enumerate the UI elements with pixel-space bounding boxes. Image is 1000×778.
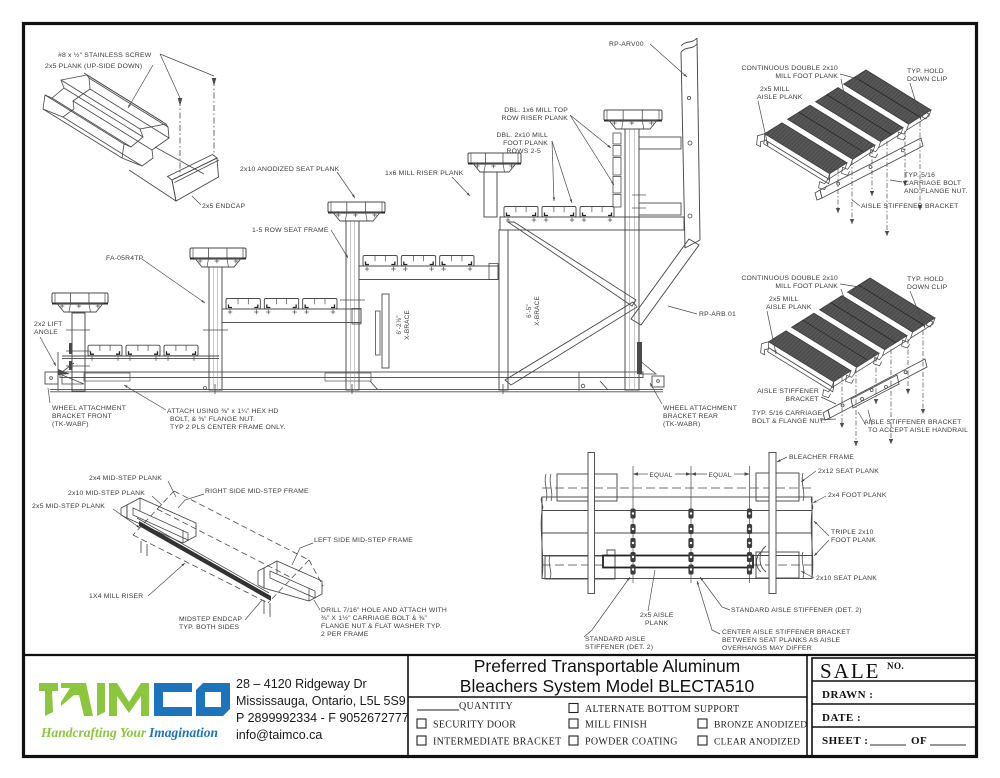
svg-text:TO ACCEPT AISLE HANDRAIL: TO ACCEPT AISLE HANDRAIL — [868, 427, 968, 434]
svg-text:AND FLANGE NUT.: AND FLANGE NUT. — [904, 188, 967, 195]
svg-text:AISLE STIFFENER BRACKET: AISLE STIFFENER BRACKET — [864, 419, 962, 426]
svg-text:DOWN CLIP: DOWN CLIP — [907, 284, 948, 291]
svg-text:2x2 LIFT: 2x2 LIFT — [34, 321, 62, 328]
svg-text:2x4 MID-STEP PLANK: 2x4 MID-STEP PLANK — [89, 475, 162, 482]
svg-text:2x4 FOOT PLANK: 2x4 FOOT PLANK — [828, 492, 887, 499]
svg-text:1-5 ROW SEAT FRAME: 1-5 ROW SEAT FRAME — [252, 227, 329, 234]
svg-text:STANDARD AISLE: STANDARD AISLE — [585, 636, 646, 643]
svg-text:QUANTITY: QUANTITY — [459, 701, 513, 712]
svg-text:MILL FOOT PLANK: MILL FOOT PLANK — [775, 283, 838, 290]
svg-text:MILL FOOT PLANK: MILL FOOT PLANK — [775, 73, 838, 80]
svg-text:TYP. HOLD: TYP. HOLD — [907, 68, 944, 75]
svg-text:TYP. 5/16 CARRIAGE: TYP. 5/16 CARRIAGE — [752, 410, 823, 417]
svg-text:X-BRACE: X-BRACE — [534, 296, 541, 326]
svg-text:BLEACHER FRAME: BLEACHER FRAME — [789, 454, 854, 461]
svg-text:BOLT, & ⅜” FLANGE NUT.: BOLT, & ⅜” FLANGE NUT. — [170, 416, 255, 423]
svg-text:DRAWN :: DRAWN : — [822, 689, 873, 701]
svg-text:FLANGE NUT & FLAT WASHER TYP.: FLANGE NUT & FLAT WASHER TYP. — [321, 623, 442, 630]
svg-text:2x10 SEAT PLANK: 2x10 SEAT PLANK — [816, 575, 877, 582]
svg-text:SECURITY DOOR: SECURITY DOOR — [433, 720, 516, 731]
svg-text:2x5 PLANK (UP-SIDE DOWN): 2x5 PLANK (UP-SIDE DOWN) — [45, 63, 142, 70]
svg-text:AISLE STIFFENER: AISLE STIFFENER — [757, 388, 819, 395]
svg-text:⅜” X 1½” CARRIAGE BOLT & ⅜”: ⅜” X 1½” CARRIAGE BOLT & ⅜” — [321, 614, 428, 622]
svg-text:SHEET :: SHEET : — [822, 735, 868, 747]
svg-text:2 PER FRAME: 2 PER FRAME — [321, 631, 369, 638]
svg-text:RIGHT SIDE MID-STEP FRAME: RIGHT SIDE MID-STEP FRAME — [205, 488, 309, 495]
svg-text:2x5 MID-STEP PLANK: 2x5 MID-STEP PLANK — [32, 503, 105, 510]
svg-text:AISLE PLANK: AISLE PLANK — [757, 94, 803, 101]
svg-text:OF: OF — [911, 735, 927, 747]
svg-text:#8 x ½" STAINLESS SCREW: #8 x ½" STAINLESS SCREW — [58, 51, 152, 59]
svg-text:Bleachers System Model BLECTA5: Bleachers System Model BLECTA510 — [460, 676, 755, 696]
svg-text:MILL FINISH: MILL FINISH — [585, 720, 647, 731]
svg-text:INTERMEDIATE BRACKET: INTERMEDIATE BRACKET — [433, 737, 562, 748]
svg-text:6’-5”: 6’-5” — [526, 304, 533, 318]
svg-text:2x12 SEAT PLANK: 2x12 SEAT PLANK — [818, 468, 879, 475]
svg-text:PLANK: PLANK — [645, 620, 669, 627]
svg-text:2x5 AISLE: 2x5 AISLE — [640, 612, 674, 619]
svg-text:BETWEEN SEAT PLANKS AS AISLE: BETWEEN SEAT PLANKS AS AISLE — [722, 637, 841, 644]
svg-text:2x5 MILL: 2x5 MILL — [769, 296, 799, 303]
svg-text:DATE :: DATE : — [822, 712, 861, 724]
svg-text:WHEEL ATTACHMENT: WHEEL ATTACHMENT — [663, 405, 737, 412]
svg-text:TYP. 5/16: TYP. 5/16 — [904, 172, 935, 179]
svg-text:TYP. BOTH SIDES: TYP. BOTH SIDES — [179, 624, 240, 631]
svg-text:STANDARD AISLE STIFFENER (DET.: STANDARD AISLE STIFFENER (DET. 2) — [731, 607, 862, 614]
svg-text:1x6 MILL RISER PLANK: 1x6 MILL RISER PLANK — [385, 170, 464, 177]
svg-text:FA-05R4TP: FA-05R4TP — [106, 255, 144, 262]
svg-text:CARRIAGE BOLT: CARRIAGE BOLT — [904, 180, 961, 187]
svg-text:LEFT SIDE MID-STEP FRAME: LEFT SIDE MID-STEP FRAME — [314, 537, 413, 544]
svg-text:FOOT PLANK: FOOT PLANK — [831, 537, 876, 544]
svg-text:info@taimco.ca: info@taimco.ca — [236, 728, 322, 742]
svg-text:ALTERNATE BOTTOM SUPPORT: ALTERNATE BOTTOM SUPPORT — [585, 704, 739, 715]
svg-text:6’-2⅞”: 6’-2⅞” — [396, 315, 403, 334]
svg-text:BRACKET REAR: BRACKET REAR — [663, 413, 718, 420]
svg-text:2x5 MILL: 2x5 MILL — [760, 86, 790, 93]
svg-text:ROW RISER PLANK: ROW RISER PLANK — [502, 115, 569, 122]
svg-text:2x10 ANODIZED SEAT PLANK: 2x10 ANODIZED SEAT PLANK — [240, 166, 340, 173]
svg-text:28 – 4120 Ridgeway Dr: 28 – 4120 Ridgeway Dr — [236, 677, 367, 691]
svg-text:Imagination: Imagination — [148, 725, 218, 740]
svg-text:AISLE STIFFENER BRACKET: AISLE STIFFENER BRACKET — [861, 203, 959, 210]
svg-text:OVERHANGS MAY DIFFER: OVERHANGS MAY DIFFER — [722, 645, 812, 652]
svg-text:POWDER COATING: POWDER COATING — [585, 737, 678, 748]
svg-text:AISLE PLANK: AISLE PLANK — [766, 304, 812, 311]
svg-text:ROWS 2-5: ROWS 2-5 — [507, 148, 541, 155]
svg-text:ATTACH USING ⅜” x 1¼” HEX HD: ATTACH USING ⅜” x 1¼” HEX HD — [167, 408, 278, 415]
svg-text:MIDSTEP ENDCAP: MIDSTEP ENDCAP — [179, 616, 242, 623]
svg-text:CONTINUOUS DOUBLE 2x10: CONTINUOUS DOUBLE 2x10 — [741, 275, 838, 282]
svg-text:CLEAR ANODIZED: CLEAR ANODIZED — [714, 738, 800, 748]
svg-text:(TK-WABF): (TK-WABF) — [52, 421, 89, 428]
svg-text:Preferred Transportable Alumin: Preferred Transportable Aluminum — [474, 656, 741, 676]
svg-text:WHEEL ATTACHMENT: WHEEL ATTACHMENT — [52, 405, 126, 412]
svg-text:BOLT & FLANGE NUT.: BOLT & FLANGE NUT. — [752, 418, 825, 425]
svg-text:BRACKET: BRACKET — [785, 396, 819, 403]
svg-text:CONTINUOUS DOUBLE 2x10: CONTINUOUS DOUBLE 2x10 — [741, 65, 838, 72]
svg-text:TYP. HOLD: TYP. HOLD — [907, 276, 944, 283]
svg-text:1X4 MILL RISER: 1X4 MILL RISER — [89, 593, 143, 600]
svg-text:2x5 ENDCAP: 2x5 ENDCAP — [202, 203, 245, 210]
svg-text:EQUAL: EQUAL — [708, 472, 731, 479]
svg-text:X-BRACE: X-BRACE — [404, 310, 411, 340]
svg-text:BRONZE ANODIZED: BRONZE ANODIZED — [714, 721, 807, 731]
svg-text:STIFFENER (DET. 2): STIFFENER (DET. 2) — [585, 644, 653, 651]
svg-text:ANGLE: ANGLE — [34, 329, 58, 336]
svg-text:(TK-WABR): (TK-WABR) — [663, 421, 700, 428]
svg-text:2x10 MID-STEP PLANK: 2x10 MID-STEP PLANK — [68, 490, 145, 497]
svg-text:Mississauga, Ontario, L5L 5S9: Mississauga, Ontario, L5L 5S9 — [236, 694, 406, 708]
svg-text:EQUAL: EQUAL — [649, 472, 672, 479]
svg-text:DRILL 7/16” HOLE AND ATTACH WI: DRILL 7/16” HOLE AND ATTACH WITH — [321, 607, 447, 614]
svg-text:SALE: SALE — [820, 659, 881, 683]
svg-text:FOOT PLANK: FOOT PLANK — [503, 140, 548, 147]
svg-text:RP-ARV00: RP-ARV00 — [609, 41, 644, 48]
svg-text:RP-ARB.01: RP-ARB.01 — [699, 311, 736, 318]
svg-text:TRIPLE 2x10: TRIPLE 2x10 — [831, 529, 874, 536]
svg-text:P 2899992334 - F 9052672777: P 2899992334 - F 9052672777 — [236, 711, 409, 725]
svg-text:CENTER AISLE STIFFENER BRACKET: CENTER AISLE STIFFENER BRACKET — [722, 629, 850, 636]
svg-text:TYP 2 PLS CENTER FRAME ONLY.: TYP 2 PLS CENTER FRAME ONLY. — [170, 424, 286, 431]
svg-text:DOWN CLIP: DOWN CLIP — [907, 76, 948, 83]
svg-text:DBL. 1x6 MILL TOP: DBL. 1x6 MILL TOP — [504, 107, 568, 114]
svg-text:BRACKET FRONT: BRACKET FRONT — [52, 413, 112, 420]
svg-text:DBL. 2x10 MILL: DBL. 2x10 MILL — [496, 132, 548, 139]
svg-text:NO.: NO. — [887, 661, 904, 671]
svg-text:Handcrafting Your: Handcrafting Your — [40, 725, 147, 740]
